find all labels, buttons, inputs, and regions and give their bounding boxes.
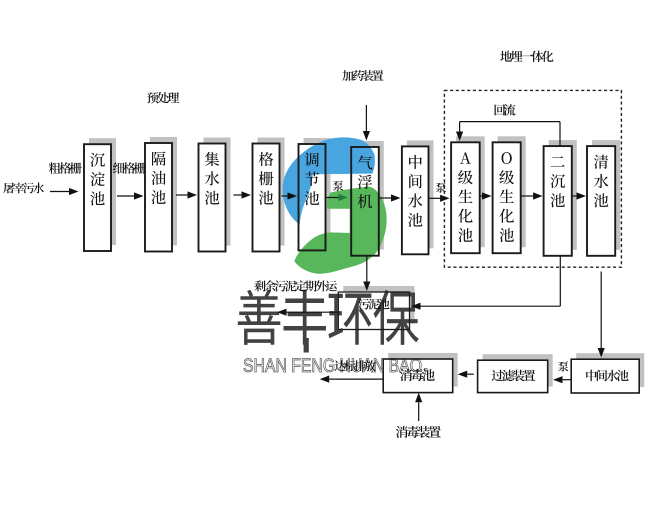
svg-text:SHAN FENG HUAN BAO: SHAN FENG HUAN BAO — [243, 355, 422, 377]
